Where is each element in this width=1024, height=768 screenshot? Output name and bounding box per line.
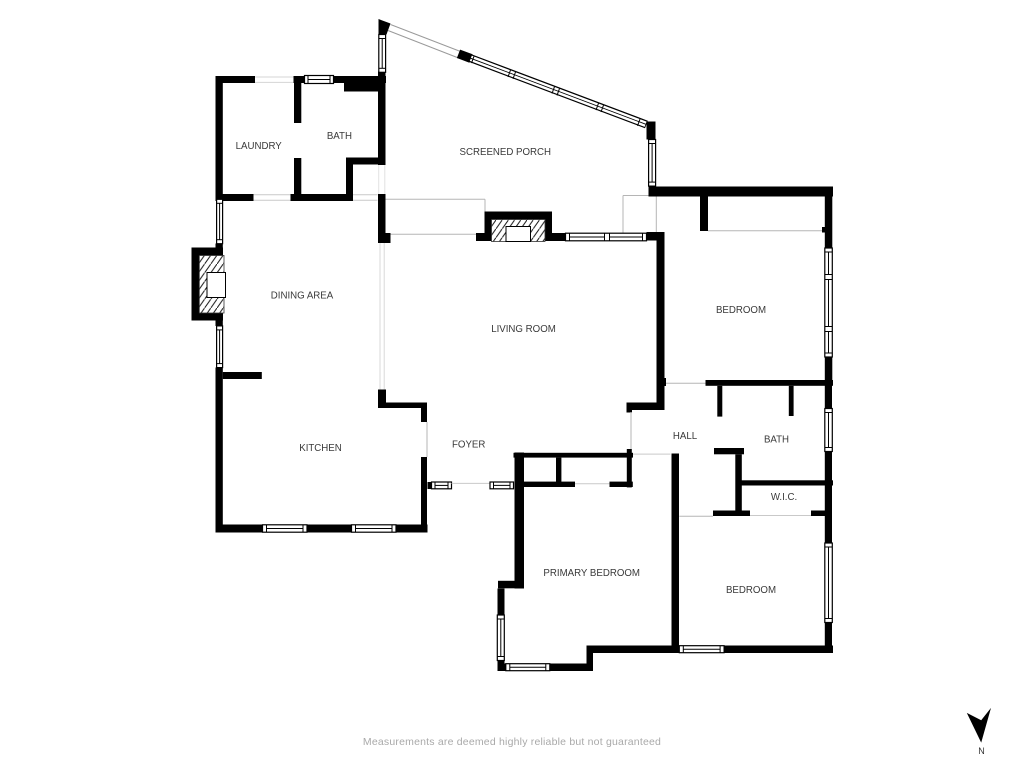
svg-text:SCREENED PORCH: SCREENED PORCH	[460, 147, 552, 158]
svg-text:LAUNDRY: LAUNDRY	[236, 141, 283, 152]
svg-text:BEDROOM: BEDROOM	[716, 305, 766, 316]
svg-text:LIVING ROOM: LIVING ROOM	[491, 324, 556, 335]
svg-text:PRIMARY BEDROOM: PRIMARY BEDROOM	[543, 568, 640, 579]
svg-text:DINING AREA: DINING AREA	[271, 291, 334, 302]
svg-text:HALL: HALL	[673, 431, 698, 442]
svg-text:KITCHEN: KITCHEN	[299, 443, 342, 454]
svg-text:BATH: BATH	[764, 435, 789, 446]
svg-text:W.I.C.: W.I.C.	[771, 492, 797, 503]
svg-text:N: N	[978, 746, 985, 756]
svg-text:FOYER: FOYER	[452, 440, 485, 451]
svg-text:Measurements are deemed highly: Measurements are deemed highly reliable …	[363, 736, 661, 748]
svg-text:BATH: BATH	[327, 131, 352, 142]
svg-text:BEDROOM: BEDROOM	[726, 585, 776, 596]
